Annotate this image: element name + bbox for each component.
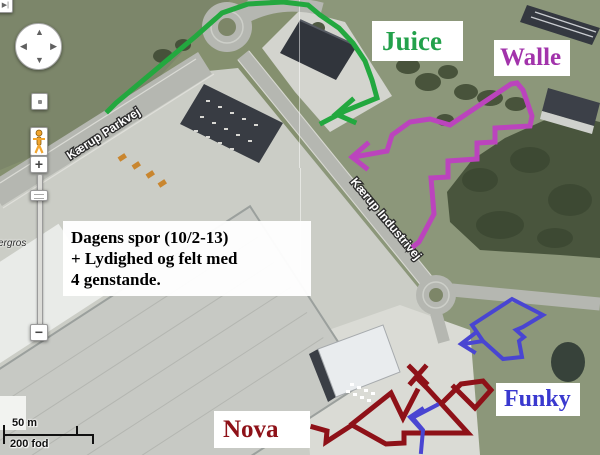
pegman-icon <box>31 128 47 155</box>
zoom-out-button[interactable]: − <box>30 324 48 341</box>
road-south-exit <box>436 313 444 342</box>
roundabout-south <box>416 275 456 315</box>
pan-left-arrow-icon[interactable]: ◀ <box>20 42 27 51</box>
scale-bar: 50 m 200 fod <box>3 417 103 453</box>
scale-bar-line <box>3 434 94 436</box>
note-line-2: + Lydighed og felt med <box>71 248 303 269</box>
collapse-panel-button[interactable]: ▶| <box>0 0 13 13</box>
track-label-juice: Juice <box>372 21 463 61</box>
track-label-funky: Funky <box>496 383 580 416</box>
center-dot-icon <box>38 100 42 104</box>
scale-bar-tick-right <box>92 434 94 444</box>
map-screenshot: Kærup Parkvej Kærup Industrivej Dagens s… <box>0 0 600 455</box>
scale-bar-tick-left <box>3 425 5 444</box>
scale-metric-label: 50 m <box>12 417 37 429</box>
scale-imperial-label: 200 fod <box>10 438 49 450</box>
reset-view-button[interactable] <box>31 93 48 110</box>
scale-bar-tick-mid <box>76 426 78 434</box>
zoom-in-button[interactable]: + <box>30 156 48 173</box>
pan-right-arrow-icon[interactable]: ▶ <box>50 42 57 51</box>
pond <box>551 342 585 382</box>
pan-control[interactable]: ▲ ▼ ◀ ▶ <box>15 23 62 70</box>
pan-up-arrow-icon[interactable]: ▲ <box>35 28 44 37</box>
pegman-streetview-button[interactable] <box>30 127 48 156</box>
zoom-slider-handle[interactable] <box>30 190 48 201</box>
track-label-nova: Nova <box>214 411 310 448</box>
pan-down-arrow-icon[interactable]: ▼ <box>35 56 44 65</box>
note-box: Dagens spor (10/2-13) + Lydighed og felt… <box>63 221 311 296</box>
track-label-walle: Walle <box>494 40 570 76</box>
note-line-1: Dagens spor (10/2-13) <box>71 227 303 248</box>
place-label-partial: ergros <box>0 238 26 249</box>
note-line-3: 4 genstande. <box>71 269 303 290</box>
